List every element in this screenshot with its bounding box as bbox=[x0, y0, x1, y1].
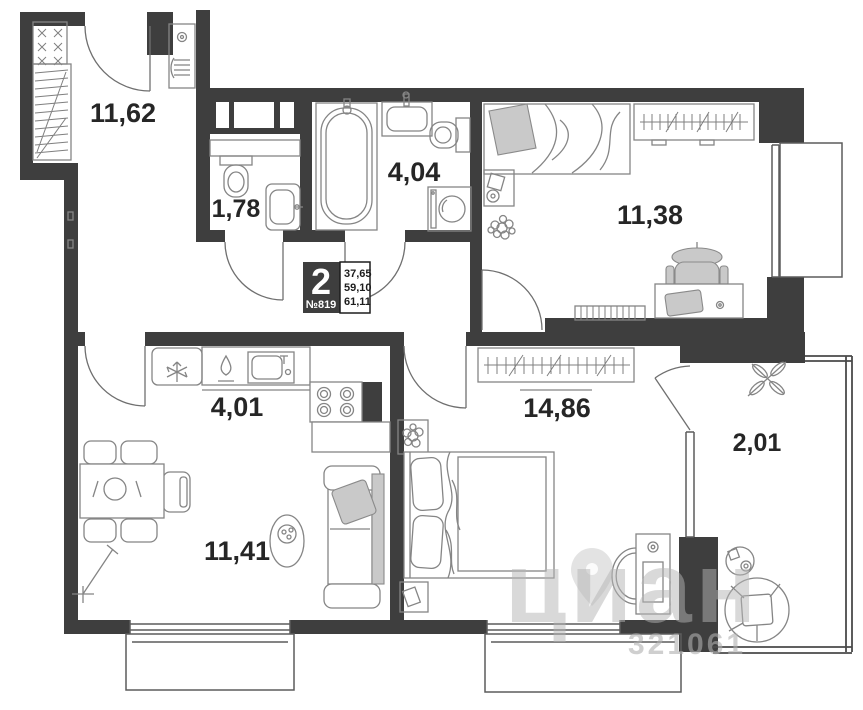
floor-plan-page: 2 №819 37,65 59,10 61,11 11,62 1,78 4,04… bbox=[0, 0, 863, 710]
vent-shaft bbox=[210, 96, 302, 134]
bathtub-icon bbox=[316, 99, 377, 230]
bay-window bbox=[772, 143, 842, 277]
vanity-shelf-icon bbox=[210, 140, 300, 156]
room-label-wc: 1,78 bbox=[212, 195, 261, 223]
kitchen-furniture bbox=[152, 347, 390, 452]
badge-rooms-count: 2 bbox=[311, 261, 331, 302]
nightstand-icon-2 bbox=[400, 582, 428, 612]
nightstand-icon bbox=[484, 170, 514, 206]
sofa-icon bbox=[324, 466, 384, 608]
badge-unit-number: №819 bbox=[306, 299, 337, 311]
fridge-icon bbox=[152, 348, 202, 385]
watermark: циан 321061 bbox=[505, 532, 760, 661]
unit-badge: 2 №819 37,65 59,10 61,11 bbox=[303, 261, 372, 313]
watermark-number: 321061 bbox=[628, 628, 746, 661]
dining-table-icon bbox=[80, 441, 190, 542]
toilet-icon bbox=[220, 156, 252, 197]
room-label-balcony: 2,01 bbox=[733, 429, 782, 457]
badge-area-1: 37,65 bbox=[344, 268, 372, 280]
room-label-bathroom: 4,04 bbox=[388, 157, 441, 187]
hallway-furniture bbox=[33, 22, 195, 248]
wardrobe-rail-icon-2 bbox=[478, 348, 634, 390]
room-label-hallway: 11,62 bbox=[90, 98, 156, 128]
wardrobe-rail-icon bbox=[634, 104, 754, 145]
badge-area-2: 59,10 bbox=[344, 282, 372, 294]
balcony-door-window bbox=[686, 432, 694, 537]
room-label-kitchen: 4,01 bbox=[211, 392, 264, 422]
coffee-table-icon bbox=[270, 515, 304, 567]
plant-icon bbox=[488, 216, 515, 240]
room-label-bedroom-top: 11,38 bbox=[617, 200, 683, 230]
balcony-plant-icon bbox=[748, 360, 787, 397]
shoe-cabinet-icon bbox=[33, 22, 67, 65]
bath-toilet-icon bbox=[430, 118, 470, 152]
kitchen-counter-icon bbox=[202, 347, 310, 390]
living-furniture bbox=[72, 441, 384, 608]
radiator-icon bbox=[575, 306, 645, 320]
entrance-door-arc bbox=[85, 26, 150, 91]
desk-icon bbox=[655, 284, 743, 318]
room-label-living: 11,41 bbox=[204, 536, 270, 566]
floor-lamp-icon bbox=[72, 545, 118, 603]
floor-plan: 2 №819 37,65 59,10 61,11 11,62 1,78 4,04… bbox=[0, 0, 863, 710]
kitchen-cabinet-icon bbox=[312, 422, 390, 452]
room-label-bedroom-main: 14,86 bbox=[523, 393, 591, 423]
washing-machine-icon bbox=[428, 187, 471, 231]
badge-area-3: 61,11 bbox=[344, 296, 371, 308]
single-bed-icon bbox=[484, 104, 630, 174]
stove-icon bbox=[310, 382, 362, 422]
sink-icon bbox=[266, 184, 303, 230]
living-window bbox=[126, 620, 294, 690]
kitchen-sink-icon bbox=[248, 352, 294, 383]
